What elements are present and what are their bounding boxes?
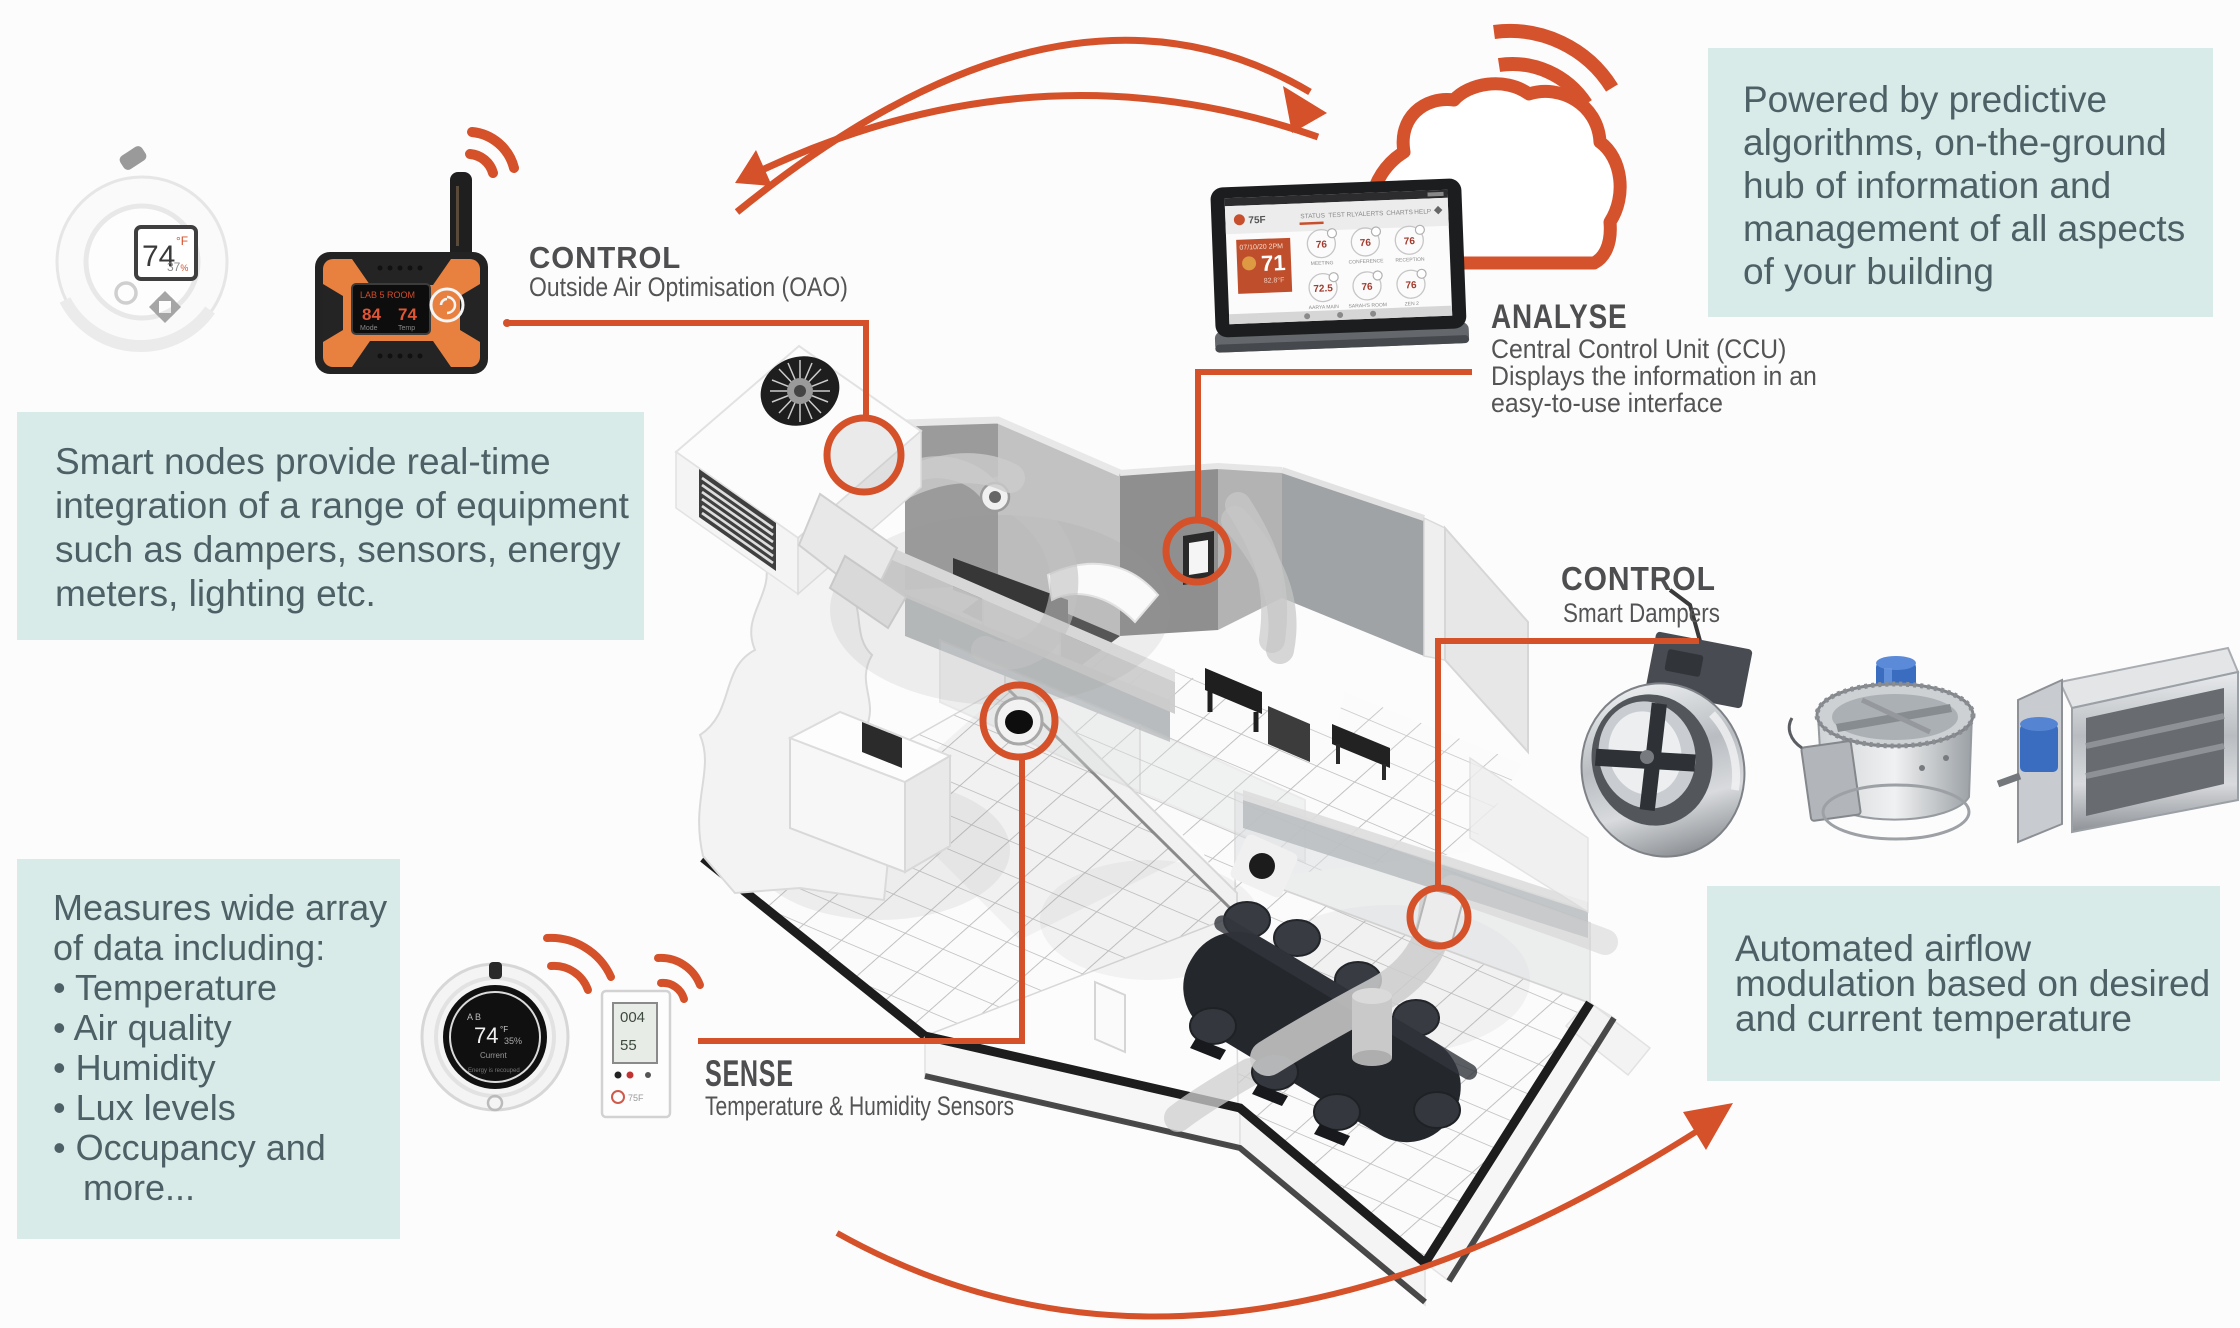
svg-text:76: 76 — [1361, 282, 1373, 293]
svg-text:Energy is recouped: Energy is recouped — [468, 1068, 520, 1074]
svg-text:82.8°F: 82.8°F — [1264, 276, 1285, 285]
svg-text:CHARTS: CHARTS — [1386, 209, 1414, 217]
svg-text:HELP: HELP — [1414, 208, 1431, 216]
svg-text:35%: 35% — [504, 1036, 522, 1046]
svg-text:75F: 75F — [1248, 215, 1266, 227]
svg-text:75F: 75F — [628, 1093, 644, 1103]
svg-text:MEETING: MEETING — [1311, 260, 1334, 267]
svg-text:°F: °F — [176, 234, 188, 248]
svg-text:74: 74 — [474, 1023, 498, 1048]
svg-text:76: 76 — [1404, 236, 1416, 247]
svg-text:ALERTS: ALERTS — [1358, 210, 1384, 218]
svg-text:84: 84 — [362, 305, 381, 324]
svg-text:Current: Current — [480, 1051, 507, 1060]
svg-text:AARYA MAIN: AARYA MAIN — [1309, 304, 1340, 311]
svg-text:TEST RLY: TEST RLY — [1328, 211, 1359, 219]
svg-text:72.5: 72.5 — [1313, 283, 1333, 295]
svg-text:004: 004 — [620, 1009, 645, 1026]
svg-text:74: 74 — [398, 305, 417, 324]
svg-text:76: 76 — [1405, 280, 1417, 291]
svg-text:Mode: Mode — [360, 325, 378, 332]
svg-text:55: 55 — [620, 1037, 637, 1054]
svg-text:76: 76 — [1360, 238, 1372, 249]
svg-text:Temp: Temp — [398, 325, 415, 332]
svg-text:LAB 5 ROOM: LAB 5 ROOM — [360, 290, 415, 300]
svg-text:A B: A B — [467, 1012, 481, 1022]
svg-text:76: 76 — [1316, 239, 1328, 250]
svg-text:°F: °F — [500, 1025, 508, 1034]
svg-text:37%: 37% — [167, 260, 188, 274]
svg-text:STATUS: STATUS — [1300, 212, 1326, 220]
svg-text:ZEN 2: ZEN 2 — [1405, 301, 1420, 308]
svg-text:RECEPTION: RECEPTION — [1395, 257, 1425, 264]
svg-text:71: 71 — [1261, 250, 1286, 276]
